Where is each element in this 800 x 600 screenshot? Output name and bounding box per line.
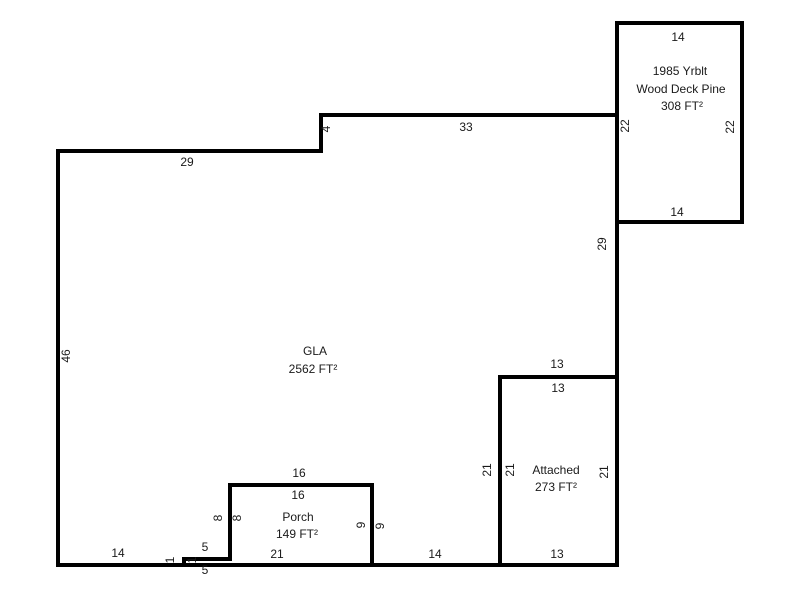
dim-porch-right-outer: 9 — [374, 523, 386, 530]
dim-porch-left-outer: 8 — [212, 515, 224, 522]
dim-attached-right: 21 — [598, 465, 610, 478]
dim-porch-bottom: 21 — [270, 548, 283, 560]
dim-gla-right-upper: 29 — [596, 237, 608, 250]
dim-gla-left: 46 — [60, 349, 72, 362]
floorplan-sketch-canvas: 14 1985 Yrblt Wood Deck Pine 308 FT² 22 … — [0, 0, 800, 600]
dim-attached-left-outer: 21 — [481, 463, 493, 476]
deck-name-label: Wood Deck Pine — [636, 83, 725, 95]
dim-attached-bottom: 13 — [550, 548, 563, 560]
attached-area-label: 273 FT² — [535, 481, 577, 493]
porch-name-label: Porch — [282, 511, 313, 523]
gla-outline — [58, 115, 617, 565]
dim-deck-left: 22 — [619, 119, 631, 132]
dim-gla-top-right: 33 — [459, 121, 472, 133]
deck-area-label: 308 FT² — [661, 100, 703, 112]
dim-porch-right-inner: 9 — [355, 522, 367, 529]
dim-deck-right: 22 — [724, 120, 736, 133]
dim-porch-top-inner: 16 — [291, 489, 304, 501]
dim-attached-top-inner: 13 — [551, 382, 564, 394]
dim-deck-bottom: 14 — [670, 206, 683, 218]
dim-porch-left-inner: 8 — [231, 515, 243, 522]
dim-gla-step: 4 — [320, 126, 332, 133]
dim-gla-top-left: 29 — [180, 156, 193, 168]
gla-name-label: GLA — [303, 345, 327, 357]
dim-jog-left: 1 — [164, 557, 176, 564]
deck-yrblt-label: 1985 Yrblt — [653, 65, 708, 77]
dim-attached-left-inner: 21 — [504, 463, 516, 476]
dim-attached-top-outer: 13 — [550, 358, 563, 370]
dim-jog-top: 5 — [202, 541, 209, 553]
dim-jog-right: 1 — [186, 557, 198, 564]
dim-deck-top: 14 — [671, 31, 684, 43]
dim-jog-bottom: 5 — [202, 564, 209, 576]
dim-gla-bottom-left: 14 — [111, 547, 124, 559]
dim-porch-top-outer: 16 — [292, 467, 305, 479]
gla-area-label: 2562 FT² — [289, 363, 338, 375]
dim-gla-bottom-mid: 14 — [428, 548, 441, 560]
porch-area-label: 149 FT² — [276, 528, 318, 540]
attached-name-label: Attached — [532, 464, 579, 476]
